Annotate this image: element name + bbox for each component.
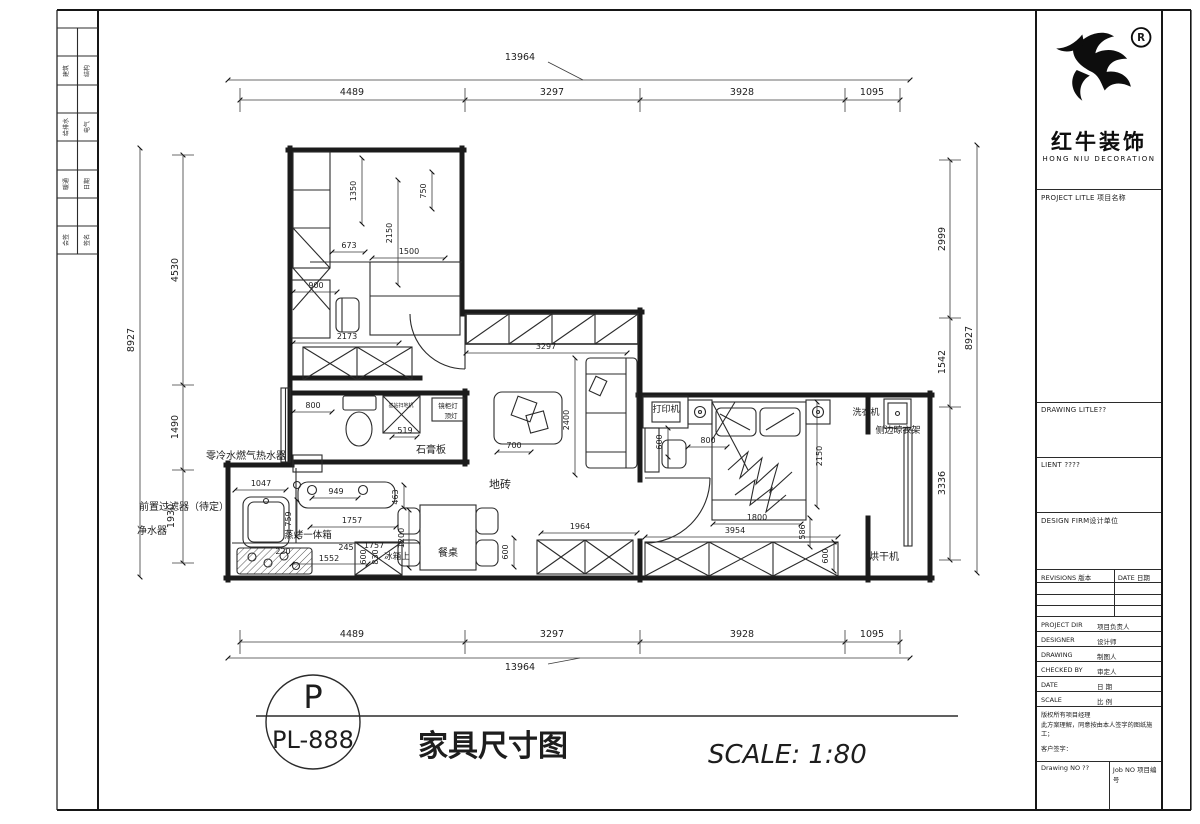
revisions-header: REVISIONS 版本 — [1037, 570, 1114, 616]
dim-text: 4530 — [170, 258, 181, 282]
title-block: R 红牛装饰 HONG NIU DECORATION PROJECT LITLE… — [1035, 10, 1163, 810]
dim-text: 2999 — [937, 227, 948, 251]
strip-cell: 电气 — [83, 121, 91, 133]
info-row-drawing: DRAWING 制图人 — [1037, 647, 1161, 662]
dim-text: 1200 — [397, 528, 406, 548]
copyright-line: 此方案理解，同意按由本人签字的图纸施工； — [1041, 721, 1158, 740]
info-label: PROJECT DIR — [1041, 621, 1083, 629]
sheet-circle-number: PL-888 — [272, 726, 354, 754]
label-steam-oven: 蒸烤一体箱 — [284, 529, 332, 541]
copyright-line: 版权所有项目经理 — [1041, 711, 1158, 721]
dim-text: 2173 — [337, 332, 357, 341]
info-label: DESIGNER — [1041, 636, 1075, 644]
dim-text: 2150 — [385, 223, 394, 243]
dim-text: 1095 — [860, 87, 884, 98]
dim-text: 949 — [328, 487, 343, 496]
sheet-circle-letter: P — [303, 678, 322, 716]
dim-text: 13964 — [505, 52, 535, 63]
date-header: DATE 日期 — [1114, 570, 1161, 616]
label-printer: 打印机 — [652, 403, 679, 415]
dim-text: 759 — [284, 511, 293, 526]
logo-chinese-name: 红牛装饰 — [1037, 126, 1161, 156]
revisions-table: REVISIONS 版本 DATE 日期 — [1037, 570, 1161, 617]
strip-cell: 给排水 — [62, 118, 70, 136]
drawing-sheet: 建筑 结构 给排水 电气 暖通 日期 会签 签名 — [0, 0, 1200, 824]
label-dining-table: 餐桌 — [438, 546, 458, 559]
dim-text: 1552 — [319, 554, 339, 563]
dim-text: 800 — [700, 436, 715, 445]
dim-text: 2150 — [815, 446, 824, 466]
dim-text: 220 — [275, 547, 290, 556]
dim-text: 3297 — [540, 629, 564, 640]
label-purifier: 净水器 — [137, 524, 167, 537]
dim-text: 4489 — [340, 629, 364, 640]
dim-text: 586 — [798, 524, 807, 539]
label-drying-rack: 侧边晾衣架 — [875, 424, 920, 436]
dim-text: 3297 — [540, 87, 564, 98]
dim-text: 13964 — [505, 662, 535, 673]
info-value: 项目负责人 — [1097, 621, 1130, 631]
label-floor-tile: 地砖 — [489, 477, 511, 491]
floor-plan-canvas: 建筑 结构 给排水 电气 暖通 日期 会签 签名 — [0, 0, 1200, 824]
dim-text: 2400 — [562, 410, 571, 430]
label-ceiling-light: 顶灯 — [445, 411, 459, 420]
sheet-title: 家具尺寸图 — [418, 729, 568, 764]
signature-strip: 建筑 结构 给排水 电气 暖通 日期 会签 签名 — [57, 28, 98, 254]
info-row-date: DATE 日 期 — [1037, 677, 1161, 692]
info-label: CHECKED BY — [1041, 666, 1083, 674]
info-value: 审定人 — [1097, 666, 1117, 676]
info-value: 比 例 — [1097, 696, 1112, 706]
dim-text: 830 — [371, 549, 380, 564]
project-title-label: PROJECT LITLE 项目名称 — [1037, 190, 1161, 203]
sheet-scale: SCALE: 1:80 — [708, 740, 867, 770]
drawing-no-section: Drawing NO ?? Job NO 项目编号 — [1037, 762, 1161, 810]
info-value: 日 期 — [1097, 681, 1112, 691]
dim-text: 3928 — [730, 629, 754, 640]
dim-text: 8927 — [964, 326, 975, 350]
walls — [226, 148, 932, 580]
dim-text: 1800 — [747, 513, 767, 522]
info-row-project-dir: PROJECT DIR 项目负责人 — [1037, 617, 1161, 632]
dim-text: 519 — [397, 426, 412, 435]
dim-text: 1757 — [342, 516, 362, 525]
dim-text: 3954 — [725, 526, 745, 535]
client-section: LIENT ???? — [1037, 458, 1161, 513]
hall-closet — [466, 314, 638, 344]
registered-mark: R — [1137, 32, 1145, 44]
outer-border-right — [1190, 10, 1191, 810]
info-row-scale: SCALE 比 例 — [1037, 692, 1161, 707]
dim-text: 8927 — [126, 328, 137, 352]
logo-english-name: HONG NIU DECORATION — [1037, 155, 1161, 163]
logo-section: R 红牛装饰 HONG NIU DECORATION — [1037, 10, 1161, 190]
dim-text: 245 — [338, 543, 353, 552]
dim-text: 1757 — [364, 541, 384, 550]
strip-cell: 结构 — [83, 65, 91, 77]
info-value: 设计师 — [1097, 636, 1117, 646]
strip-cell: 签名 — [83, 234, 91, 246]
hongniu-logo-icon: R — [1045, 14, 1157, 126]
info-label: DRAWING — [1041, 651, 1073, 659]
dim-text: 3928 — [730, 87, 754, 98]
label-plasterboard: 石膏板 — [416, 443, 446, 456]
info-row-designer: DESIGNER 设计师 — [1037, 632, 1161, 647]
dim-text: 3336 — [937, 471, 948, 495]
dim-text: 1047 — [251, 479, 271, 488]
info-value: 制图人 — [1097, 651, 1117, 661]
label-dryer: 烘干机 — [869, 550, 899, 563]
dim-text: 673 — [341, 241, 356, 250]
bedroom-furniture — [643, 396, 838, 576]
study-furniture — [292, 152, 462, 380]
label-fridge: 冰箱上 — [384, 551, 410, 562]
info-row-checked-by: CHECKED BY 审定人 — [1037, 662, 1161, 677]
label-mirror-light: 镜柜灯 — [438, 401, 458, 410]
info-label: DATE — [1041, 681, 1058, 689]
client-label: LIENT ???? — [1037, 458, 1161, 469]
dim-text: 600 — [359, 549, 368, 564]
dim-text: 700 — [506, 441, 521, 450]
dim-text: 800 — [305, 401, 320, 410]
label-vacuum-base: 基站扫地机 — [388, 402, 413, 409]
label-water-heater: 零冷水燃气热水器 — [206, 449, 286, 462]
dim-text: 463 — [391, 489, 400, 504]
strip-cell: 会签 — [62, 234, 70, 246]
client-signature-label: 客户签字： — [1041, 745, 1158, 755]
dim-text: 1964 — [570, 522, 590, 531]
strip-cell: 建筑 — [62, 65, 70, 77]
design-firm-label: DESIGN FIRM设计单位 — [1037, 513, 1161, 526]
label-prefilter: 前置过滤器（待定） — [139, 500, 229, 513]
dim-text: 600 — [821, 548, 830, 563]
drawing-title-section: DRAWING LITLE?? — [1037, 403, 1161, 458]
dim-text: 1350 — [349, 181, 358, 201]
living-furniture — [494, 358, 637, 574]
design-firm-section: DESIGN FIRM设计单位 — [1037, 513, 1161, 570]
dim-text: 750 — [419, 183, 428, 198]
dim-text: 3297 — [536, 342, 556, 351]
drawing-no-label: Drawing NO ?? — [1037, 762, 1109, 810]
dim-text: 900 — [308, 281, 323, 290]
dim-text: 600 — [501, 544, 510, 559]
dim-text: 1542 — [937, 350, 948, 374]
sheet-frame — [57, 10, 1191, 810]
label-washer: 洗衣机 — [852, 406, 879, 418]
copyright-section: 版权所有项目经理 此方案理解，同意按由本人签字的图纸施工； 客户签字： — [1037, 707, 1161, 762]
sheet-title-area: P PL-888 家具尺寸图 SCALE: 1:80 — [256, 675, 958, 770]
drawing-title-label: DRAWING LITLE?? — [1037, 403, 1161, 414]
dining-set — [398, 505, 498, 570]
job-no-label: Job NO 项目编号 — [1109, 762, 1161, 810]
project-title-section: PROJECT LITLE 项目名称 — [1037, 190, 1161, 403]
balcony-fixtures — [884, 399, 911, 428]
dim-text: 1095 — [860, 629, 884, 640]
dim-text: 1500 — [399, 247, 419, 256]
info-label: SCALE — [1041, 696, 1062, 704]
dim-text: 4489 — [340, 87, 364, 98]
strip-cell: 暖通 — [62, 178, 70, 190]
dim-text: 600 — [655, 434, 664, 449]
dim-text: 1490 — [170, 415, 181, 439]
strip-cell: 日期 — [83, 178, 91, 190]
